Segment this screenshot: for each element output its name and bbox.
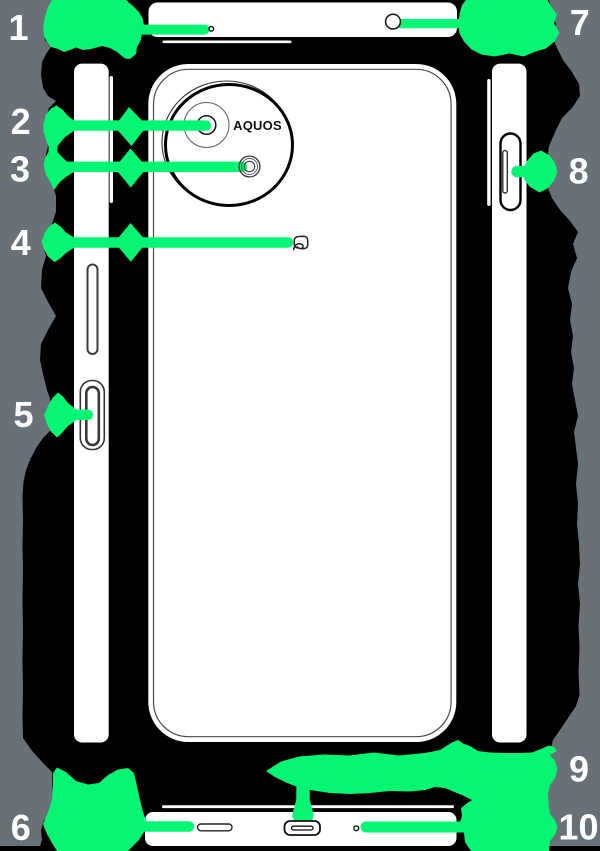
svg-text:6: 6 xyxy=(11,807,31,848)
svg-text:5: 5 xyxy=(13,394,33,435)
svg-text:3: 3 xyxy=(10,149,30,190)
svg-text:4: 4 xyxy=(11,222,31,263)
svg-text:1: 1 xyxy=(8,7,28,48)
svg-text:AQUOS: AQUOS xyxy=(233,118,282,133)
svg-text:7: 7 xyxy=(570,2,590,43)
svg-text:8: 8 xyxy=(569,151,589,192)
svg-text:9: 9 xyxy=(569,749,589,790)
svg-text:10: 10 xyxy=(558,807,598,848)
svg-text:2: 2 xyxy=(11,101,31,142)
